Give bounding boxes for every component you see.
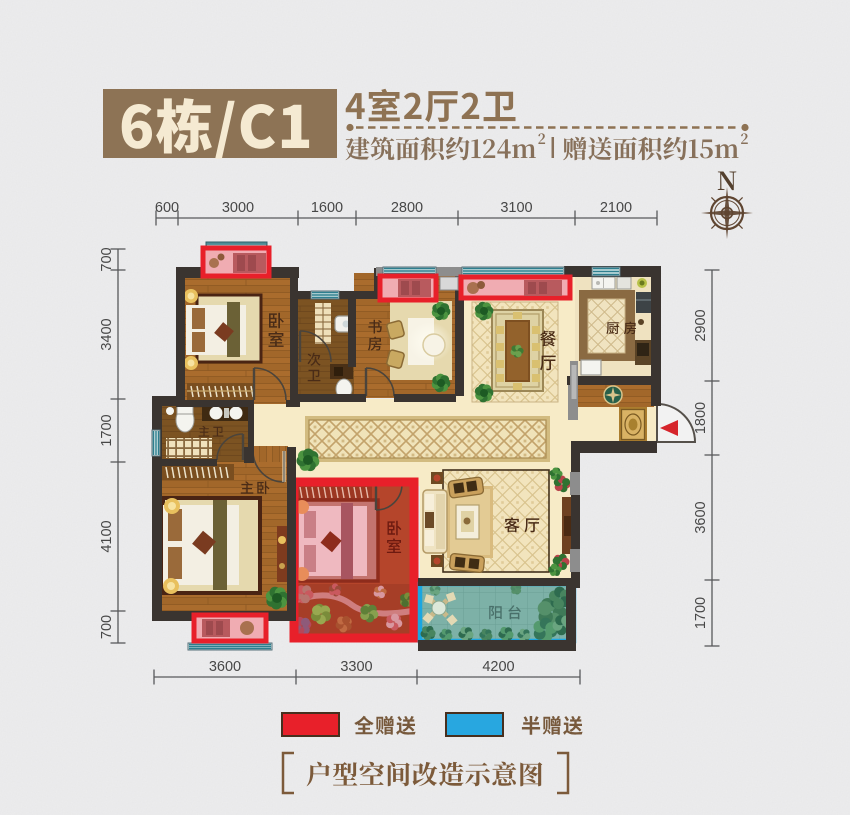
svg-text:3600: 3600 xyxy=(693,501,709,533)
svg-text:1700: 1700 xyxy=(693,597,709,629)
svg-text:3100: 3100 xyxy=(500,200,532,216)
svg-text:3300: 3300 xyxy=(340,659,372,675)
svg-text:3400: 3400 xyxy=(99,318,115,350)
svg-text:2900: 2900 xyxy=(693,309,709,341)
svg-text:2800: 2800 xyxy=(391,200,423,216)
svg-text:700: 700 xyxy=(99,247,115,271)
svg-text:1600: 1600 xyxy=(311,200,343,216)
svg-text:600: 600 xyxy=(155,200,179,216)
svg-text:700: 700 xyxy=(99,615,115,639)
svg-text:1800: 1800 xyxy=(693,402,709,434)
svg-text:4100: 4100 xyxy=(99,520,115,552)
svg-text:4200: 4200 xyxy=(482,659,514,675)
svg-text:1700: 1700 xyxy=(99,414,115,446)
svg-text:3600: 3600 xyxy=(209,659,241,675)
svg-text:3000: 3000 xyxy=(222,200,254,216)
svg-text:2100: 2100 xyxy=(600,200,632,216)
